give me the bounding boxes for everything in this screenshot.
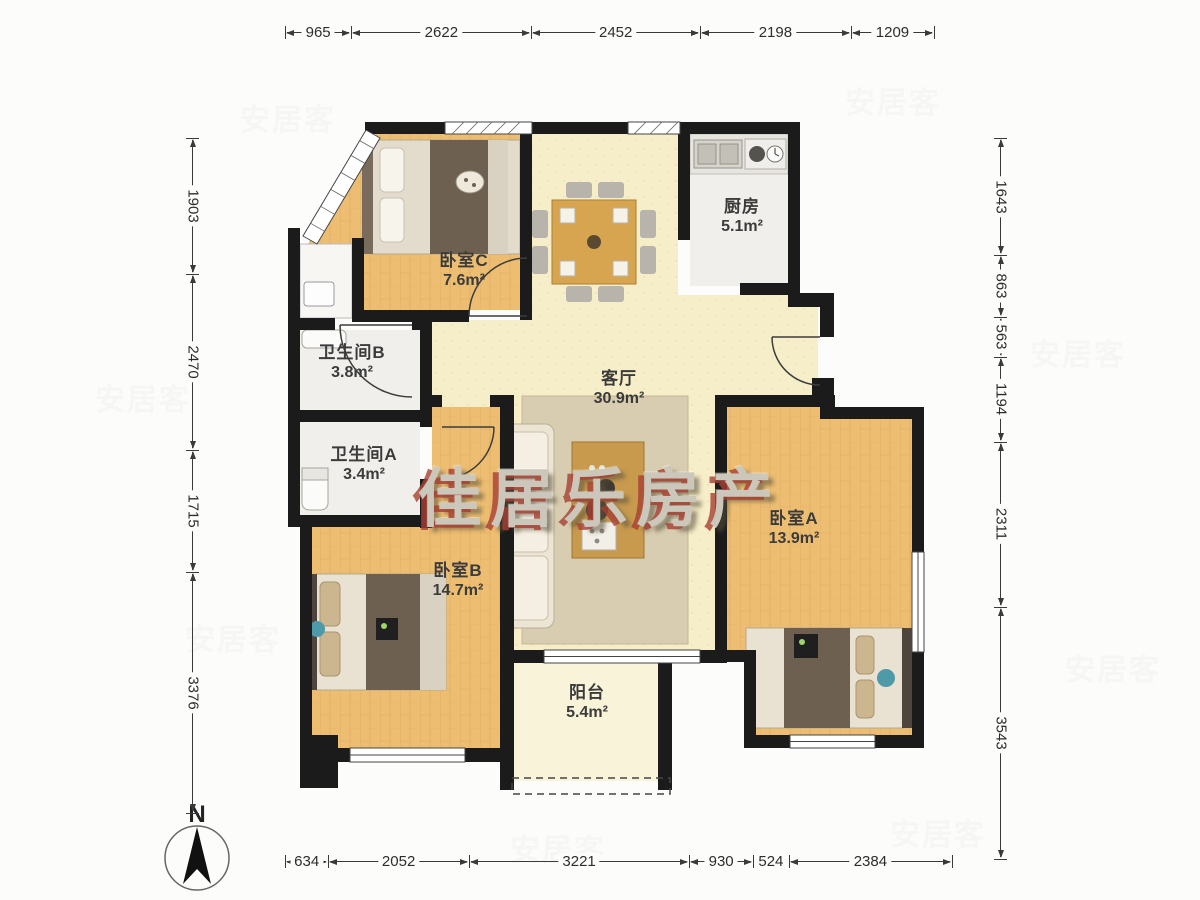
dining-chair	[566, 182, 592, 198]
dimension-line-top: 965 2622 2452 2198 1209	[285, 24, 935, 41]
dimension-value: 1209	[872, 24, 913, 41]
dimension-value: 1643	[992, 176, 1009, 217]
wall	[658, 650, 672, 790]
room-label-bedroom-b: 卧室B 14.7m²	[433, 560, 484, 601]
room-label-bathroom-b: 卫生间B 3.8m²	[318, 342, 385, 383]
stove-burner	[749, 146, 765, 162]
room-area: 30.9m²	[594, 389, 645, 409]
dining-chair	[532, 210, 548, 238]
plate	[560, 261, 575, 276]
room-area: 5.4m²	[566, 703, 608, 723]
dimension-segment: 965	[285, 24, 351, 41]
dimension-segment: 3221	[469, 853, 689, 870]
wall	[826, 407, 916, 419]
dimension-value: 563	[992, 320, 1009, 353]
room-name: 卫生间B	[318, 342, 385, 363]
niche-appliance	[304, 282, 334, 306]
dining-chair	[532, 246, 548, 274]
wall	[820, 305, 834, 337]
dimension-segment: 2622	[351, 24, 531, 41]
pillow	[856, 680, 874, 718]
dimension-segment: 2311	[992, 442, 1009, 607]
wall	[512, 650, 544, 663]
dimension-value: 3376	[184, 672, 201, 713]
dimension-value: 1194	[992, 379, 1009, 419]
pillow	[320, 582, 340, 626]
compass: N	[165, 801, 229, 890]
wall	[715, 395, 835, 407]
agency-watermark: 佳居乐房产	[418, 448, 783, 540]
wall	[520, 122, 532, 320]
dimension-segment: 1715	[184, 450, 201, 572]
room-area: 3.4m²	[330, 465, 397, 485]
sink-basin	[720, 144, 738, 164]
dining-chair	[598, 286, 624, 302]
pillow	[320, 632, 340, 676]
bed-b-tv	[376, 618, 398, 640]
room-area: 3.8m²	[318, 363, 385, 383]
site-watermark: 安居客	[1030, 330, 1126, 374]
room-name: 卫生间A	[330, 444, 397, 465]
dimension-value: 965	[302, 24, 335, 41]
dimension-value: 863	[992, 269, 1009, 302]
wall	[288, 228, 300, 520]
dimension-segment: 1194	[992, 357, 1009, 442]
dining-chair	[640, 210, 656, 238]
dimension-value: 1903	[184, 185, 201, 226]
bed-a-tv	[794, 634, 818, 658]
bed-c-sheet	[488, 140, 508, 254]
wall	[788, 122, 800, 302]
wall	[352, 310, 469, 322]
dimension-segment: 863	[992, 255, 1009, 317]
dimension-segment: 1643	[992, 138, 1009, 255]
room-name: 厨房	[721, 196, 763, 217]
dimension-value: 2622	[421, 24, 462, 41]
room-name: 客厅	[594, 368, 645, 389]
site-watermark: 安居客	[95, 375, 191, 419]
dimension-value: 2470	[184, 341, 201, 382]
dimension-segment: 1209	[851, 24, 934, 41]
room-name: 卧室C	[439, 250, 488, 271]
dimension-line-right: 1643 863 563 1194 2311 3543	[992, 138, 1009, 860]
dimension-segment: 2452	[531, 24, 699, 41]
room-label-balcony: 阳台 5.4m²	[566, 682, 608, 723]
plate	[613, 261, 628, 276]
compass-needle-icon	[183, 827, 211, 884]
wall	[288, 410, 432, 422]
room-area: 5.1m²	[721, 217, 763, 237]
wall	[300, 515, 312, 750]
wall	[365, 122, 800, 134]
dimension-value: 524	[754, 853, 787, 870]
dimension-segment: 2384	[789, 853, 952, 870]
duct-niche	[300, 244, 352, 318]
wall	[352, 238, 364, 322]
pillow	[856, 636, 874, 674]
dimension-line-bottom: 634 2052 3221 930 524 2384	[285, 853, 953, 870]
dimension-segment: 2052	[328, 853, 468, 870]
dimension-segment: 2470	[184, 274, 201, 450]
table-bowl	[587, 235, 601, 249]
dimension-value: 2198	[755, 24, 796, 41]
dimension-value: 3221	[558, 853, 599, 870]
plate	[560, 208, 575, 223]
pillow	[380, 198, 404, 242]
bed-c-decor	[456, 171, 484, 193]
dimension-segment: 3543	[992, 607, 1009, 860]
room-label-bathroom-a: 卫生间A 3.4m²	[330, 444, 397, 485]
room-area: 7.6m²	[439, 271, 488, 291]
room-label-living: 客厅 30.9m²	[594, 368, 645, 409]
dimension-segment: 2198	[700, 24, 851, 41]
wall	[788, 293, 834, 307]
bed-a-decor	[877, 669, 895, 687]
dining-chair	[598, 182, 624, 198]
dimension-value: 2384	[850, 853, 891, 870]
dining-chair	[640, 246, 656, 274]
sink-basin	[698, 144, 716, 164]
room-area: 14.7m²	[433, 581, 484, 601]
dimension-value: 2311	[992, 504, 1009, 544]
site-watermark: 安居客	[1065, 645, 1161, 689]
dimension-segment: 563	[992, 317, 1009, 357]
toilet-tank	[302, 468, 328, 480]
dimension-line-left: 1903 2470 1715 3376	[184, 138, 201, 814]
bed-c-blanket	[430, 140, 488, 254]
pillow	[380, 148, 404, 192]
dimension-segment: 634	[285, 853, 328, 870]
dimension-value: 1715	[184, 490, 201, 531]
floor-plan-page: 安居客 安居客 安居客 安居客 安居客 安居客 安居客 安居客	[0, 0, 1200, 900]
room-label-kitchen: 厨房 5.1m²	[721, 196, 763, 237]
site-watermark: 安居客	[890, 810, 986, 854]
dining-chair	[566, 286, 592, 302]
dimension-value: 930	[705, 853, 738, 870]
room-name: 阳台	[566, 682, 608, 703]
dimension-segment: 3376	[184, 572, 201, 813]
wall	[678, 122, 690, 240]
wall	[740, 283, 800, 295]
dimension-segment: 524	[753, 853, 789, 870]
site-watermark: 安居客	[240, 95, 336, 139]
plate	[613, 208, 628, 223]
wall	[700, 650, 727, 663]
room-label-bedroom-c: 卧室C 7.6m²	[439, 250, 488, 291]
room-name: 卧室B	[433, 560, 484, 581]
bed-a-headboard	[902, 628, 912, 728]
dimension-segment: 1903	[184, 138, 201, 274]
site-watermark: 安居客	[845, 78, 941, 122]
dimension-value: 2452	[595, 24, 636, 41]
dimension-value: 2052	[378, 853, 419, 870]
wall	[744, 650, 756, 745]
wall	[490, 395, 512, 407]
dimension-segment: 930	[689, 853, 753, 870]
dimension-value: 3543	[992, 712, 1009, 753]
dimension-value: 634	[290, 853, 323, 870]
